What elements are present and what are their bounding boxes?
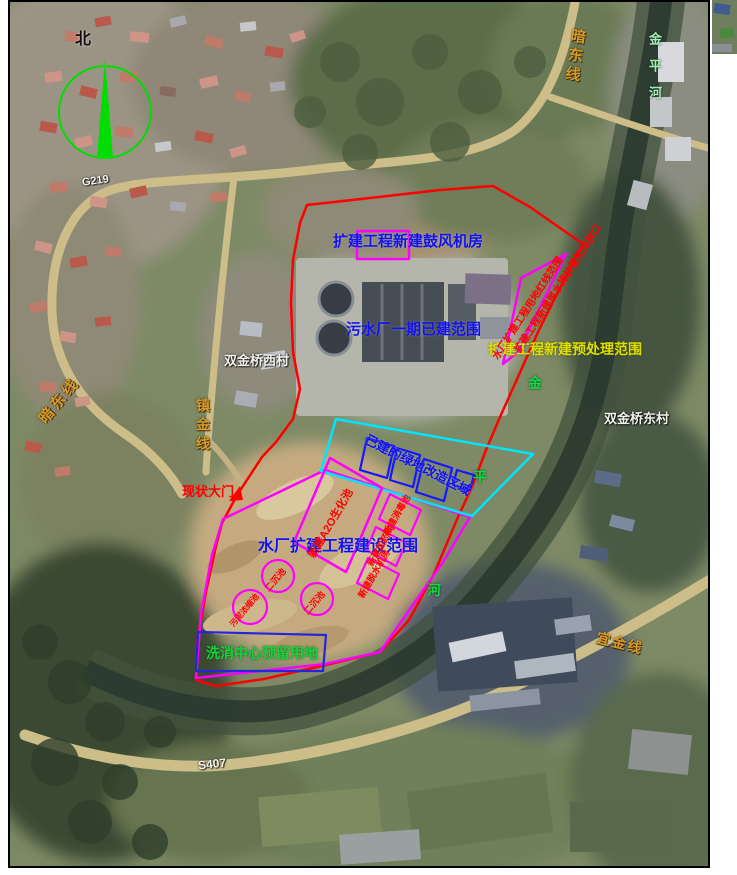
- satellite-background: [10, 2, 710, 868]
- plant-structures: [296, 258, 512, 416]
- site-plan-figure: 北 G219 S407 暗东线 暗东线 镇金线 宜金线 双金桥西村 双金桥东村 …: [0, 0, 737, 875]
- corner-imagery-patch: [712, 0, 737, 54]
- map-frame: 北 G219 S407 暗东线 暗东线 镇金线 宜金线 双金桥西村 双金桥东村 …: [8, 0, 710, 868]
